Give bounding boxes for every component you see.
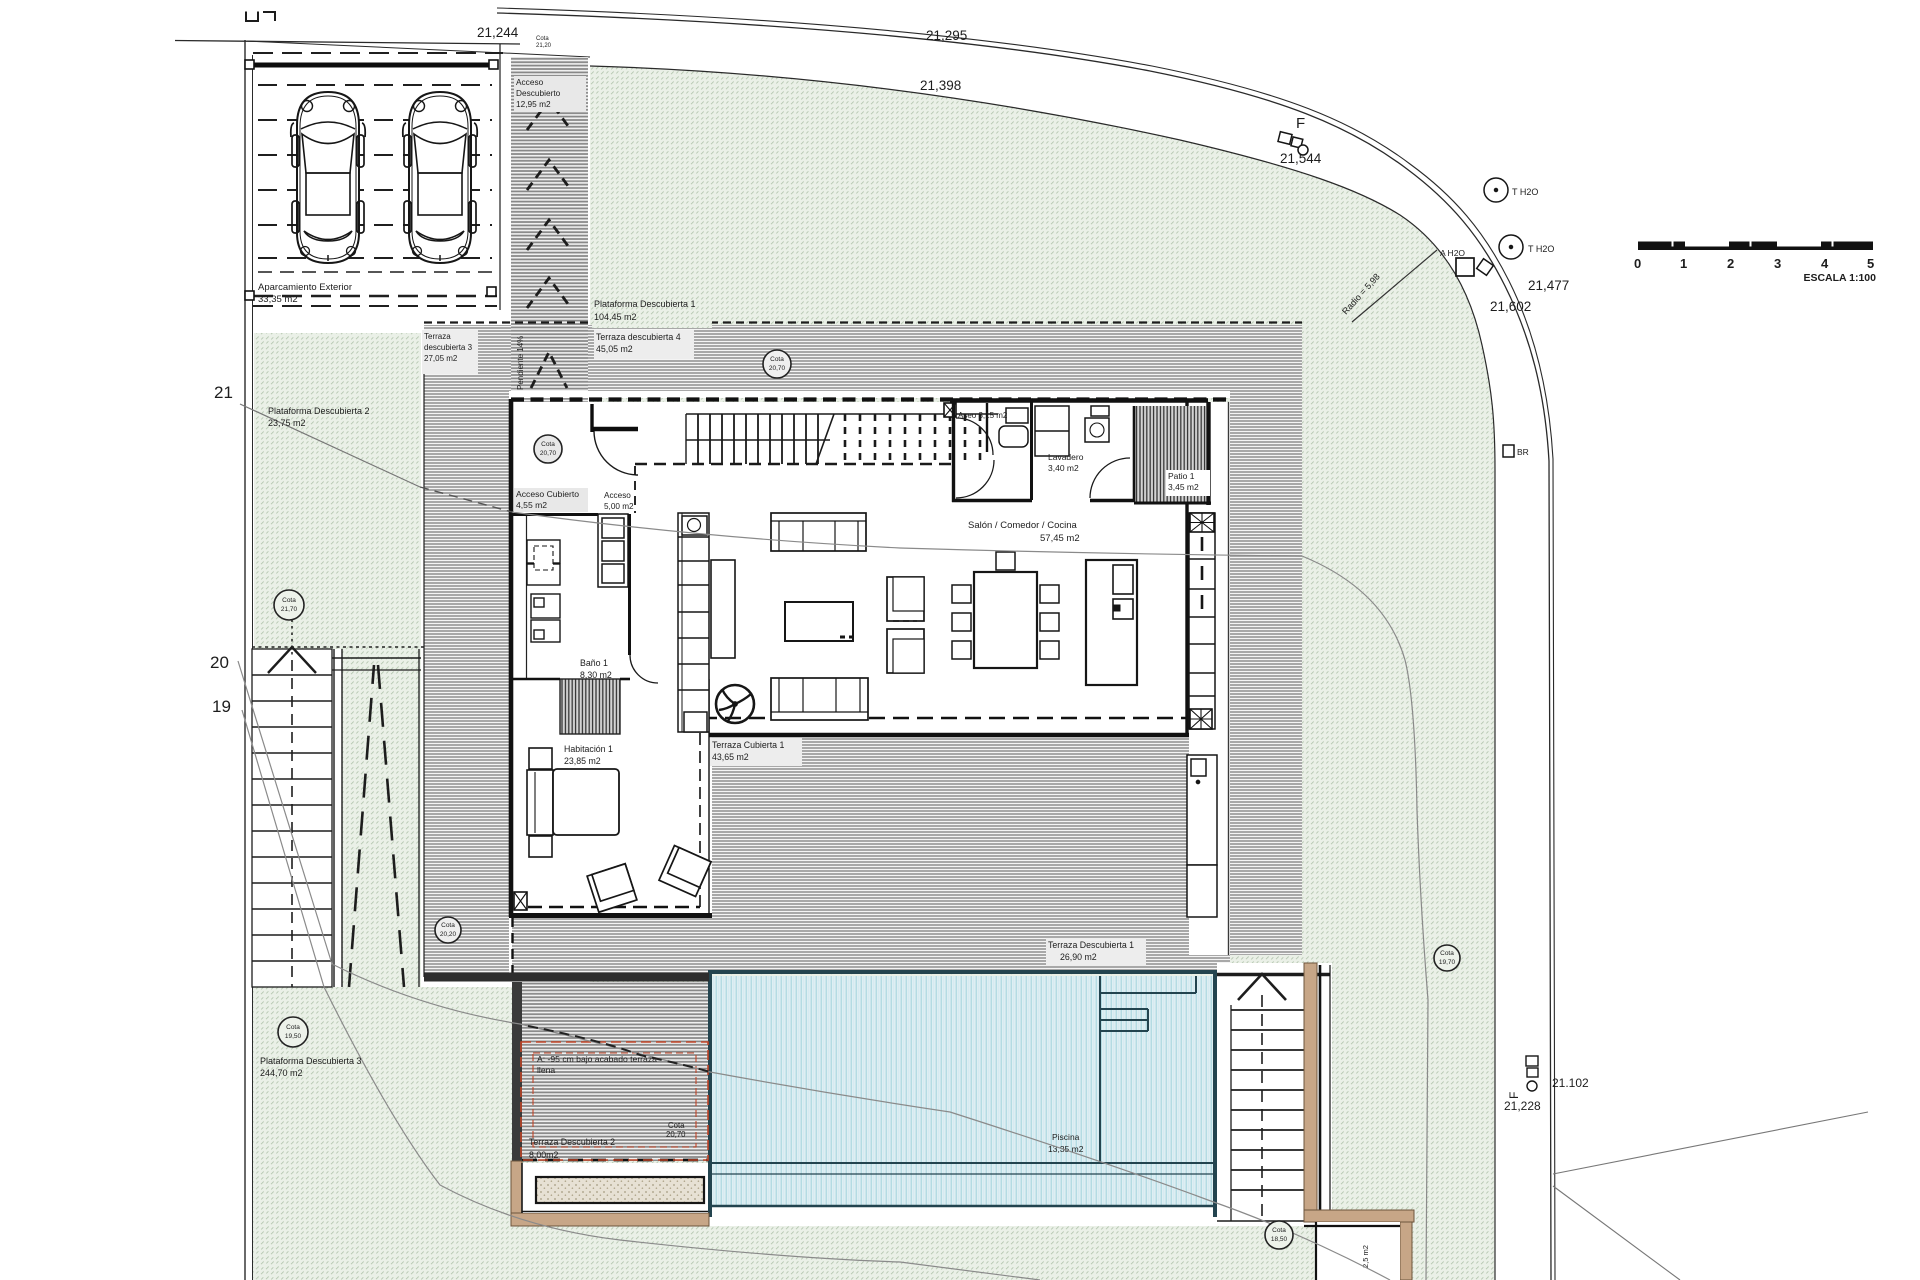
svg-text:Aseo 3,15 m2: Aseo 3,15 m2 [958, 411, 1008, 420]
svg-text:57,45 m2: 57,45 m2 [1040, 533, 1080, 544]
svg-text:Acceso: Acceso [604, 491, 631, 500]
svg-text:21.102: 21.102 [1552, 1076, 1589, 1090]
svg-text:Terraza Cubierta 1: Terraza Cubierta 1 [712, 740, 784, 750]
svg-text:T H2O: T H2O [1528, 244, 1554, 254]
svg-text:0: 0 [1634, 256, 1641, 271]
svg-text:21,477: 21,477 [1528, 278, 1569, 293]
svg-text:BR: BR [1517, 447, 1529, 457]
svg-text:21,295: 21,295 [926, 28, 967, 43]
svg-text:Lavadero: Lavadero [1048, 452, 1084, 462]
svg-text:Plataforma Descubierta 2: Plataforma Descubierta 2 [268, 406, 370, 416]
svg-text:21,70: 21,70 [281, 606, 298, 613]
svg-text:4: 4 [1821, 256, 1829, 271]
svg-text:Terraza: Terraza [424, 332, 451, 341]
svg-text:llena: llena [537, 1065, 555, 1075]
svg-text:244,70 m2: 244,70 m2 [260, 1068, 303, 1078]
svg-text:Cota: Cota [282, 597, 296, 604]
svg-text:Piscina: Piscina [1052, 1132, 1080, 1142]
svg-text:5: 5 [1867, 256, 1874, 271]
svg-text:20,20: 20,20 [440, 931, 457, 938]
svg-text:20,70: 20,70 [540, 450, 557, 457]
svg-text:Cota: Cota [1440, 950, 1454, 957]
svg-text:26,90 m2: 26,90 m2 [1060, 952, 1097, 962]
svg-text:19: 19 [212, 697, 231, 716]
svg-text:Habitación 1: Habitación 1 [564, 744, 613, 754]
svg-text:A H2O: A H2O [1440, 248, 1465, 258]
svg-text:Pendiente 14%: Pendiente 14% [516, 336, 525, 390]
svg-text:21,228: 21,228 [1504, 1099, 1541, 1113]
svg-text:23,75 m2: 23,75 m2 [268, 418, 306, 428]
svg-text:21,398: 21,398 [920, 78, 961, 93]
svg-text:Plataforma Descubierta 1: Plataforma Descubierta 1 [594, 299, 696, 309]
svg-text:Acceso: Acceso [516, 77, 544, 87]
svg-text:3: 3 [1774, 256, 1781, 271]
svg-text:Acceso Cubierto: Acceso Cubierto [516, 489, 579, 499]
svg-text:2,5 m2: 2,5 m2 [1361, 1245, 1370, 1268]
svg-text:3,45 m2: 3,45 m2 [1168, 482, 1199, 492]
svg-text:Aparcamiento Exterior: Aparcamiento Exterior [258, 282, 352, 293]
svg-text:1: 1 [1680, 256, 1687, 271]
svg-text:20: 20 [210, 653, 229, 672]
svg-text:3,40 m2: 3,40 m2 [1048, 463, 1079, 473]
svg-text:19,50: 19,50 [285, 1033, 302, 1040]
svg-text:descubierta 3: descubierta 3 [424, 343, 473, 352]
svg-text:20,70: 20,70 [666, 1130, 686, 1139]
svg-text:Cota: Cota [541, 441, 555, 448]
svg-text:2: 2 [1727, 256, 1734, 271]
svg-text:Cota: Cota [770, 356, 784, 363]
svg-text:21,244: 21,244 [477, 25, 519, 40]
svg-text:Cota: Cota [441, 922, 455, 929]
svg-text:45,05 m2: 45,05 m2 [596, 344, 633, 354]
svg-text:Descubierto: Descubierto [516, 88, 561, 98]
svg-text:20,70: 20,70 [769, 365, 786, 372]
svg-text:T H2O: T H2O [1512, 187, 1538, 197]
svg-text:21: 21 [214, 383, 233, 402]
svg-text:Cota: Cota [1272, 1227, 1286, 1234]
svg-text:27,05 m2: 27,05 m2 [424, 354, 458, 363]
svg-text:18,50: 18,50 [1271, 1236, 1288, 1243]
svg-text:F: F [1507, 1092, 1521, 1099]
svg-text:Plataforma Descubierta 3: Plataforma Descubierta 3 [260, 1056, 362, 1066]
svg-text:Cota: Cota [668, 1121, 685, 1130]
svg-text:8,00m2: 8,00m2 [529, 1150, 558, 1160]
svg-text:Baño 1: Baño 1 [580, 658, 608, 668]
svg-text:Patio 1: Patio 1 [1168, 471, 1195, 481]
svg-text:8,30 m2: 8,30 m2 [580, 670, 612, 680]
svg-text:21,20: 21,20 [536, 43, 552, 49]
svg-text:5,00 m2: 5,00 m2 [604, 502, 634, 511]
svg-text:104,45 m2: 104,45 m2 [594, 312, 637, 322]
svg-text:21,602: 21,602 [1490, 299, 1531, 314]
svg-text:23,85 m2: 23,85 m2 [564, 756, 601, 766]
svg-text:Terraza Descubierta 2: Terraza Descubierta 2 [529, 1137, 615, 1147]
svg-text:12,95 m2: 12,95 m2 [516, 99, 551, 109]
svg-text:Terraza descubierta 4: Terraza descubierta 4 [596, 332, 681, 342]
svg-text:Cota: Cota [536, 36, 549, 42]
svg-text:Cota: Cota [286, 1024, 300, 1031]
svg-text:43,65 m2: 43,65 m2 [712, 752, 749, 762]
svg-text:ESCALA 1:100: ESCALA 1:100 [1803, 272, 1876, 284]
svg-text:33,35 m2: 33,35 m2 [258, 294, 298, 305]
svg-text:F: F [1296, 115, 1305, 132]
svg-text:Terraza Descubierta 1: Terraza Descubierta 1 [1048, 940, 1134, 950]
svg-text:19,70: 19,70 [1439, 959, 1456, 966]
svg-text:Salón / Comedor / Cocina: Salón / Comedor / Cocina [968, 520, 1077, 531]
svg-text:4,55 m2: 4,55 m2 [516, 500, 547, 510]
